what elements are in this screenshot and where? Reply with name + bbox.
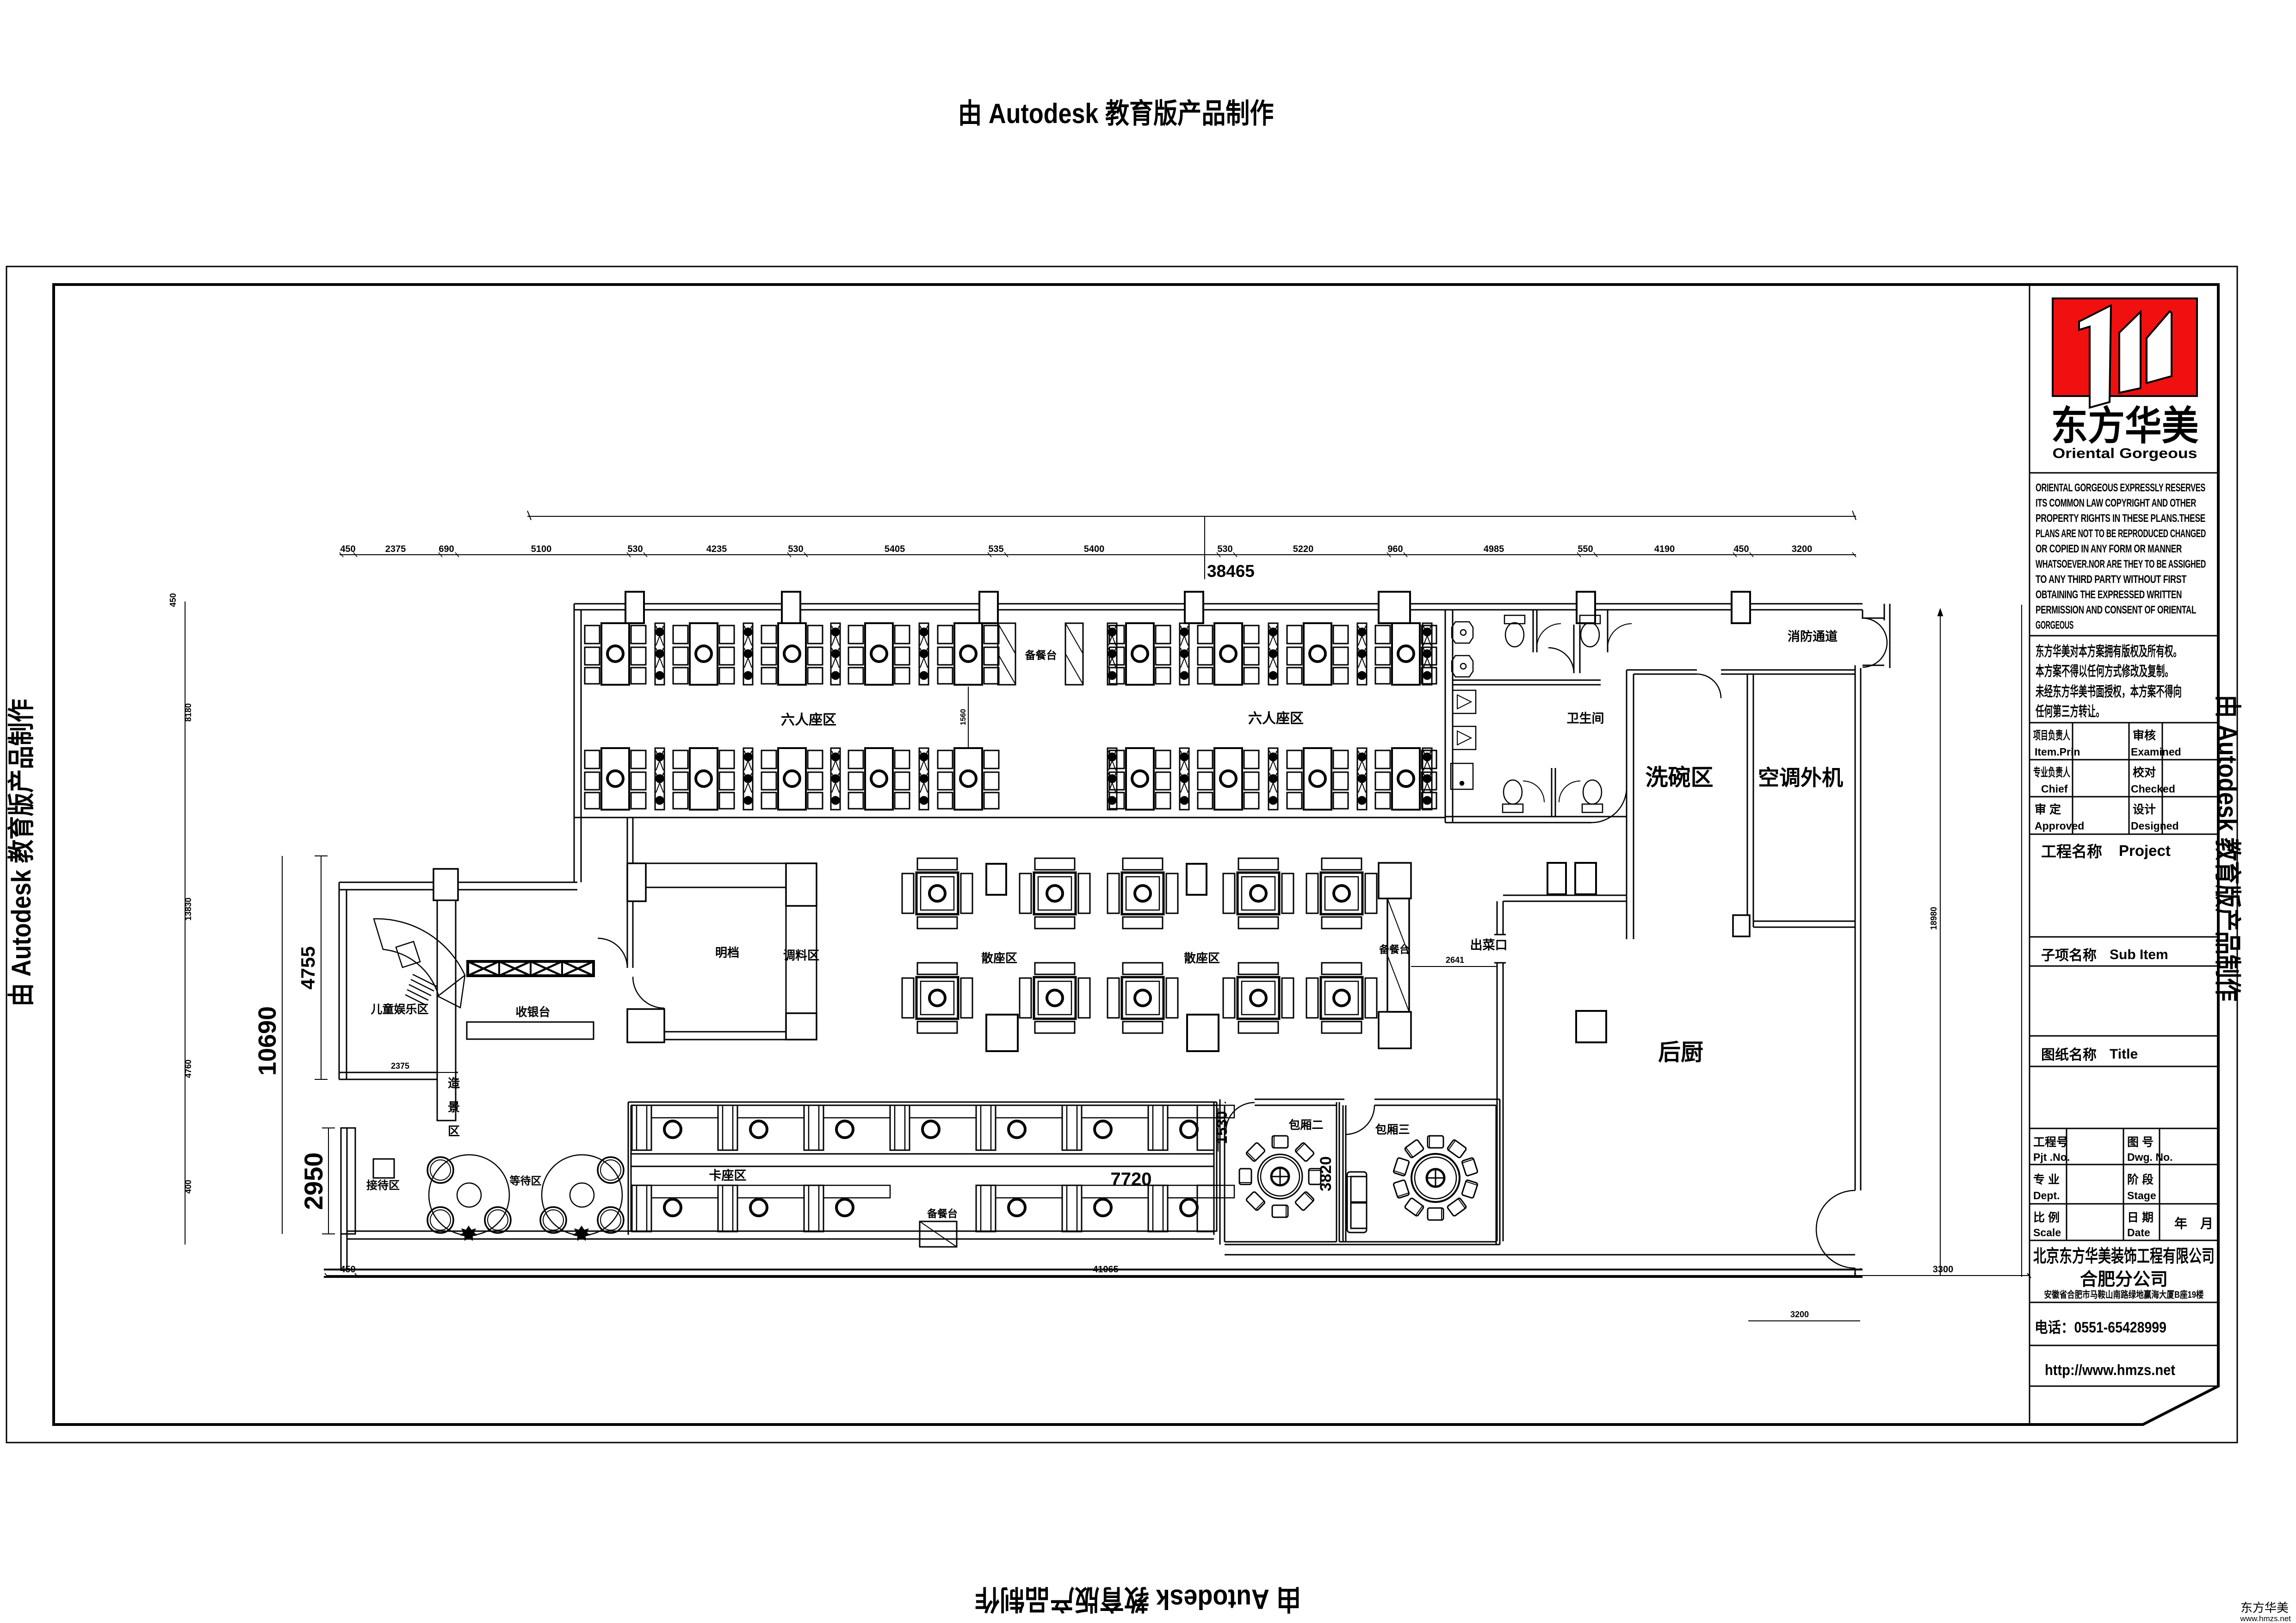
svg-text:Designed: Designed <box>2131 820 2179 832</box>
svg-text:六人座区: 六人座区 <box>781 712 836 728</box>
svg-text:由 Autodesk 教育版产品制作: 由 Autodesk 教育版产品制作 <box>958 98 1274 129</box>
svg-text:专业负责人: 专业负责人 <box>2033 766 2070 779</box>
svg-text:38465: 38465 <box>1207 562 1255 581</box>
svg-text:550: 550 <box>1578 544 1593 554</box>
svg-text:散座区: 散座区 <box>1184 951 1220 965</box>
svg-text:Title: Title <box>2110 1047 2138 1062</box>
svg-text:450: 450 <box>168 593 178 607</box>
svg-text:Date: Date <box>2127 1227 2150 1239</box>
svg-text:Project: Project <box>2119 842 2171 859</box>
svg-text:Chief: Chief <box>2041 783 2068 795</box>
svg-text:3820: 3820 <box>1317 1156 1335 1191</box>
svg-text:PROPERTY RIGHTS IN THESE PLANS: PROPERTY RIGHTS IN THESE PLANS.THESE <box>2036 512 2205 525</box>
svg-text:WHATSOEVER.NOR ARE THEY TO BE: WHATSOEVER.NOR ARE THEY TO BE ASSIGHED <box>2036 558 2206 570</box>
svg-text:530: 530 <box>788 544 803 554</box>
svg-text:PERMISSION AND CONSENT OF ORIE: PERMISSION AND CONSENT OF ORIENTAL <box>2036 604 2196 616</box>
svg-text:960: 960 <box>1387 544 1403 554</box>
svg-text:1560: 1560 <box>959 709 967 725</box>
svg-text:TO ANY THIRD PARTY WITHOUT FIR: TO ANY THIRD PARTY WITHOUT FIRST <box>2036 573 2187 586</box>
svg-text:3200: 3200 <box>1792 544 1813 554</box>
svg-text:1530: 1530 <box>1213 1111 1230 1144</box>
svg-text:包厢三: 包厢三 <box>1375 1123 1410 1136</box>
svg-text:4235: 4235 <box>706 544 727 554</box>
svg-text:景: 景 <box>448 1100 460 1114</box>
svg-text:比 例: 比 例 <box>2033 1211 2060 1224</box>
svg-text:电话：0551-65428999: 电话：0551-65428999 <box>2035 1319 2166 1336</box>
svg-text:5220: 5220 <box>1293 544 1314 554</box>
svg-text:出菜口: 出菜口 <box>1470 938 1508 952</box>
svg-text:PLANS ARE NOT TO BE REPRODUCED: PLANS ARE NOT TO BE REPRODUCED CHANGED <box>2036 527 2206 540</box>
svg-text:审核: 审核 <box>2133 729 2156 742</box>
svg-text:六人座区: 六人座区 <box>1248 711 1304 726</box>
svg-text:4760: 4760 <box>184 1059 193 1078</box>
svg-text:Item.Prin: Item.Prin <box>2035 746 2080 758</box>
svg-text:散座区: 散座区 <box>981 951 1017 965</box>
svg-text:专 业: 专 业 <box>2033 1173 2060 1186</box>
svg-text:Dwg. No.: Dwg. No. <box>2127 1151 2172 1163</box>
svg-text:5400: 5400 <box>1084 544 1105 554</box>
svg-text:由 Autodesk 教育版产品制作: 由 Autodesk 教育版产品制作 <box>975 1584 1301 1615</box>
svg-text:东方华美: 东方华美 <box>2051 404 2199 448</box>
svg-text:设计: 设计 <box>2133 803 2156 816</box>
svg-text:未经东方华美书面授权，本方案不得向: 未经东方华美书面授权，本方案不得向 <box>2036 684 2182 700</box>
svg-text:OR COPIED IN ANY FORM OR MANNE: OR COPIED IN ANY FORM OR MANNER <box>2036 543 2182 555</box>
svg-text:530: 530 <box>1217 544 1232 554</box>
svg-text:ORIENTAL GORGEOUS EXPRESSLY RE: ORIENTAL GORGEOUS EXPRESSLY RESERVES <box>2036 482 2205 494</box>
svg-text:13830: 13830 <box>184 898 193 921</box>
svg-text:审 定: 审 定 <box>2035 803 2061 816</box>
svg-text:8180: 8180 <box>184 703 193 722</box>
svg-text:明档: 明档 <box>715 946 739 960</box>
svg-text:项目负责人: 项目负责人 <box>2033 729 2070 742</box>
svg-text:Scale: Scale <box>2033 1227 2061 1239</box>
svg-text:图 号: 图 号 <box>2127 1136 2154 1149</box>
svg-text:接待区: 接待区 <box>366 1179 400 1192</box>
svg-text:7720: 7720 <box>1111 1169 1152 1189</box>
svg-text:400: 400 <box>184 1180 193 1194</box>
svg-text:www.hmzs.net: www.hmzs.net <box>2240 1614 2291 1623</box>
svg-text:4985: 4985 <box>1484 544 1504 554</box>
svg-text:合肥分公司: 合肥分公司 <box>2080 1270 2168 1289</box>
svg-text:卡座区: 卡座区 <box>709 1168 747 1183</box>
svg-text:535: 535 <box>988 544 1003 554</box>
svg-text:Oriental Gorgeous: Oriental Gorgeous <box>2053 445 2197 461</box>
svg-text:Stage: Stage <box>2127 1189 2156 1202</box>
svg-text:卫生间: 卫生间 <box>1567 712 1604 725</box>
svg-text:http://www.hmzs.net: http://www.hmzs.net <box>2045 1362 2175 1378</box>
svg-text:备餐台: 备餐台 <box>927 1208 958 1220</box>
svg-text:包厢二: 包厢二 <box>1288 1118 1323 1132</box>
svg-text:备餐台: 备餐台 <box>1025 649 1057 661</box>
svg-text:阶 段: 阶 段 <box>2127 1173 2154 1186</box>
svg-text:空调外机: 空调外机 <box>1758 766 1843 790</box>
svg-text:收银台: 收银台 <box>515 1005 550 1019</box>
svg-text:Approved: Approved <box>2035 820 2084 832</box>
svg-text:调料区: 调料区 <box>783 948 819 962</box>
svg-text:2375: 2375 <box>385 544 406 554</box>
svg-text:3200: 3200 <box>1790 1310 1809 1319</box>
svg-text:530: 530 <box>627 544 643 554</box>
svg-text:GORGEOUS: GORGEOUS <box>2036 619 2073 632</box>
svg-text:10690: 10690 <box>254 1006 281 1076</box>
svg-text:工程号: 工程号 <box>2033 1136 2068 1149</box>
svg-text:造: 造 <box>448 1076 460 1090</box>
svg-text:子项名称: 子项名称 <box>2041 948 2097 963</box>
svg-text:450: 450 <box>340 1264 355 1275</box>
svg-text:Pjt .No.: Pjt .No. <box>2033 1151 2070 1163</box>
svg-text:OBTAINING THE EXPRESSED WRITTE: OBTAINING THE EXPRESSED WRITTEN <box>2036 588 2182 601</box>
svg-text:东方华美: 东方华美 <box>2240 1601 2289 1615</box>
svg-text:Dept.: Dept. <box>2033 1189 2060 1202</box>
svg-text:图纸名称: 图纸名称 <box>2041 1047 2097 1063</box>
svg-text:日 期: 日 期 <box>2127 1211 2154 1224</box>
svg-text:450: 450 <box>1733 544 1749 554</box>
svg-text:年 月: 年 月 <box>2174 1216 2213 1231</box>
svg-text:Sub Item: Sub Item <box>2110 947 2168 962</box>
svg-text:2950: 2950 <box>299 1152 328 1210</box>
svg-text:18980: 18980 <box>1929 907 1938 930</box>
svg-text:工程名称: 工程名称 <box>2041 843 2102 860</box>
svg-text:儿童娱乐区: 儿童娱乐区 <box>371 1003 428 1016</box>
svg-text:任何第三方转让。: 任何第三方转让。 <box>2035 704 2104 719</box>
svg-text:Examined: Examined <box>2131 746 2181 758</box>
svg-text:3300: 3300 <box>1933 1264 1954 1275</box>
svg-text:ITS COMMON LAW COPYRIGHT AND O: ITS COMMON LAW COPYRIGHT AND OTHER <box>2036 497 2196 509</box>
svg-text:校对: 校对 <box>2133 766 2156 779</box>
svg-text:消防通道: 消防通道 <box>1788 629 1838 644</box>
svg-text:690: 690 <box>439 544 454 554</box>
svg-text:2641: 2641 <box>1446 955 1464 965</box>
svg-text:东方华美对本方案拥有版权及所有权。: 东方华美对本方案拥有版权及所有权。 <box>2036 644 2182 659</box>
svg-text:本方案不得以任何方式修改及复制。: 本方案不得以任何方式修改及复制。 <box>2036 663 2173 679</box>
svg-text:5405: 5405 <box>885 544 905 554</box>
svg-text:Checked: Checked <box>2131 783 2175 795</box>
svg-text:4755: 4755 <box>297 946 319 989</box>
svg-text:41065: 41065 <box>1093 1264 1119 1275</box>
svg-text:4190: 4190 <box>1654 544 1675 554</box>
svg-text:等待区: 等待区 <box>510 1175 542 1187</box>
svg-text:区: 区 <box>448 1124 460 1138</box>
svg-text:洗碗区: 洗碗区 <box>1645 765 1713 790</box>
svg-text:2375: 2375 <box>391 1061 409 1071</box>
svg-text:安徽省合肥市马鞍山南路绿地赢海大厦B座19楼: 安徽省合肥市马鞍山南路绿地赢海大厦B座19楼 <box>2044 1289 2204 1300</box>
svg-text:5100: 5100 <box>531 544 552 554</box>
svg-text:北京东方华美装饰工程有限公司: 北京东方华美装饰工程有限公司 <box>2033 1247 2215 1266</box>
svg-text:由 Autodesk 教育版产品制作: 由 Autodesk 教育版产品制作 <box>6 699 37 1007</box>
svg-text:后厨: 后厨 <box>1658 1040 1703 1065</box>
